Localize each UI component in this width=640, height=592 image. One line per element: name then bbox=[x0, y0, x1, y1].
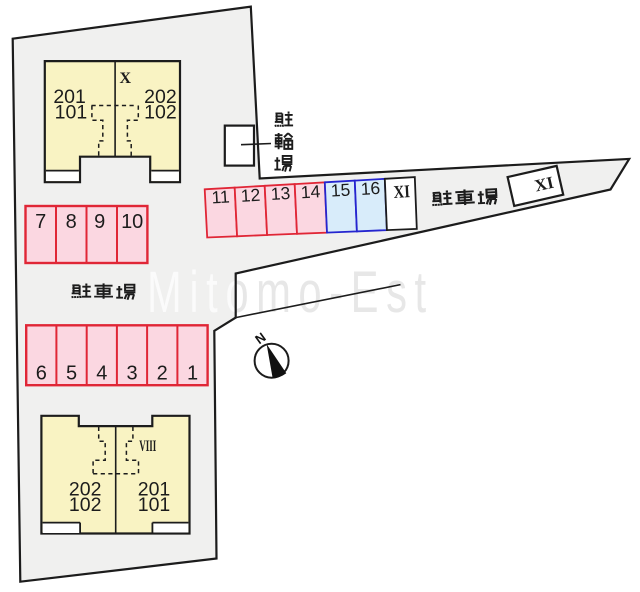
svg-text:13: 13 bbox=[270, 183, 291, 204]
svg-text:7: 7 bbox=[35, 211, 46, 233]
svg-text:9: 9 bbox=[94, 211, 105, 233]
svg-text:101: 101 bbox=[55, 102, 88, 124]
svg-text:2: 2 bbox=[157, 363, 168, 385]
svg-text:1: 1 bbox=[187, 363, 198, 385]
svg-text:16: 16 bbox=[360, 178, 381, 199]
svg-text:15: 15 bbox=[330, 180, 351, 201]
svg-text:X: X bbox=[120, 70, 132, 87]
svg-text:4: 4 bbox=[96, 363, 107, 385]
svg-text:VIII: VIII bbox=[139, 438, 156, 455]
svg-text:102: 102 bbox=[69, 494, 102, 516]
svg-text:3: 3 bbox=[126, 363, 137, 385]
svg-text:12: 12 bbox=[240, 185, 261, 206]
svg-text:14: 14 bbox=[300, 181, 321, 202]
svg-text:6: 6 bbox=[36, 363, 47, 385]
svg-text:8: 8 bbox=[66, 211, 77, 233]
svg-text:102: 102 bbox=[144, 102, 177, 124]
svg-text:XI: XI bbox=[393, 181, 411, 202]
svg-text:5: 5 bbox=[66, 363, 77, 385]
svg-text:10: 10 bbox=[121, 211, 143, 233]
svg-text:101: 101 bbox=[138, 494, 171, 516]
svg-text:11: 11 bbox=[211, 187, 230, 208]
